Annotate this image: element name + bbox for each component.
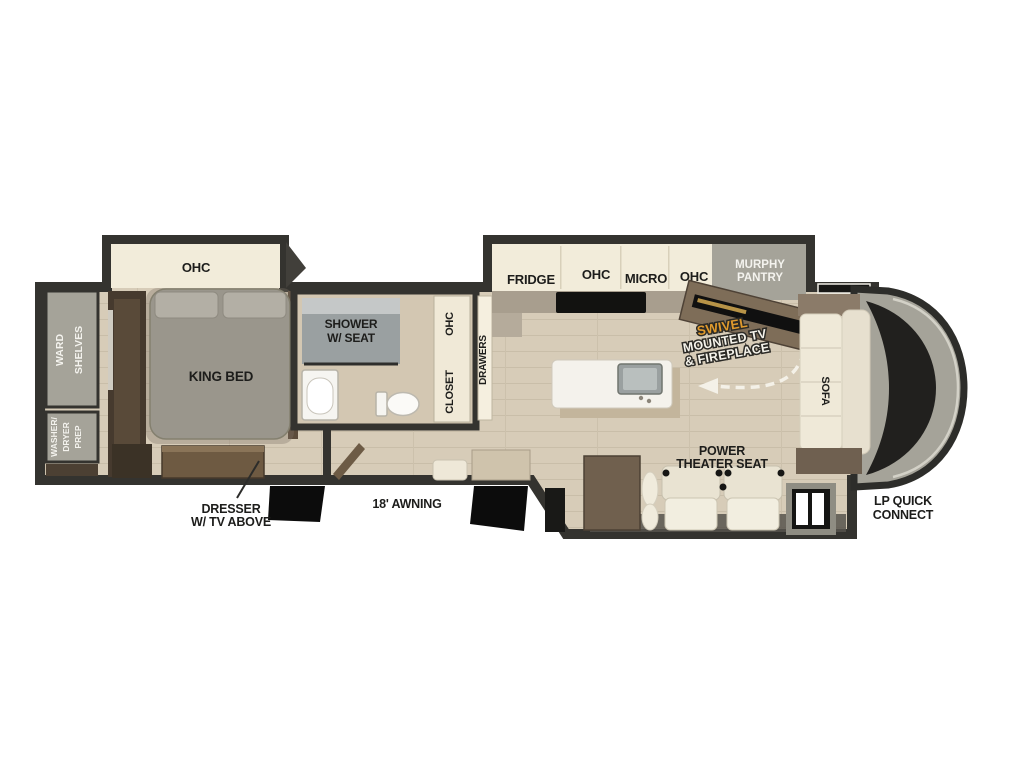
sofa-seat	[842, 310, 870, 454]
toilet-tank	[376, 392, 387, 416]
cabinet-seam	[620, 246, 622, 289]
king-bed-label: KING BED	[189, 369, 254, 384]
awning-label: 18' AWNING	[372, 497, 441, 511]
entry-door	[786, 483, 836, 535]
faucet-dot	[647, 399, 651, 403]
shower-label-line1: SHOWER	[325, 317, 378, 331]
theater-seat-left	[662, 466, 720, 530]
floorplan-canvas: OHC WARD SHELVES WASHER/ DRYER PREP KING…	[0, 0, 1024, 768]
seat-cushion	[665, 498, 717, 530]
closet-ohc-label: OHC	[444, 312, 456, 336]
side-table	[584, 456, 640, 530]
bedroom-ohc-label: OHC	[182, 260, 211, 275]
theater-seat-right	[724, 466, 782, 530]
hall-bench	[433, 460, 467, 480]
hall-counter	[472, 450, 530, 480]
dresser-label-line2: W/ TV ABOVE	[191, 515, 271, 529]
bathroom-sink-bowl	[307, 378, 333, 414]
slide-corner-wedge	[286, 242, 306, 288]
bedroom-bench	[112, 444, 152, 478]
hall-wall	[323, 425, 331, 482]
lp-label-line2: CONNECT	[873, 508, 934, 522]
wardrobe-inner	[114, 299, 140, 467]
seat-cushion	[727, 498, 779, 530]
shelves-label: SHELVES	[73, 326, 85, 374]
closet-label: CLOSET	[444, 370, 456, 414]
seat-button	[778, 470, 785, 477]
pillow-right	[223, 292, 286, 318]
entry-step	[268, 486, 325, 522]
cabinet-seam	[560, 246, 562, 289]
kitchen-counter-corner	[492, 313, 522, 337]
pillow-left	[155, 292, 218, 318]
shower-label-line2: W/ SEAT	[327, 331, 376, 345]
sofa-label: SOFA	[819, 376, 831, 405]
bedroom-ohc-slide: OHC	[111, 242, 306, 288]
fridge-label: FRIDGE	[507, 272, 555, 287]
drawers-label: DRAWERS	[478, 335, 489, 385]
prep-label: PREP	[73, 425, 83, 448]
dresser-label-line1: DRESSER	[201, 502, 260, 516]
sofa-area: SOFA	[796, 294, 870, 474]
corner-cabinet	[46, 464, 98, 476]
lp-label-line1: LP QUICK	[874, 494, 932, 508]
recliner-wing	[642, 504, 658, 530]
washer-label: WASHER/	[49, 417, 59, 457]
dresser-top-edge	[162, 446, 264, 452]
faucet-dot	[639, 396, 643, 400]
entry-step	[470, 486, 528, 531]
recliner-wing	[642, 472, 658, 506]
murphy-label-line2: PANTRY	[737, 272, 783, 284]
bathroom: SHOWER W/ SEAT OHC CLOSET	[294, 291, 476, 427]
entry-door-pane	[796, 493, 808, 525]
kitchen-island	[552, 360, 680, 418]
seat-back	[662, 466, 720, 500]
entry-dark-corner	[545, 488, 565, 532]
bedroom-window	[108, 310, 113, 390]
sofa-console-bottom	[796, 448, 862, 474]
seat-back	[724, 466, 782, 500]
kitchen-ohc-left-label: OHC	[582, 267, 611, 282]
seat-button	[720, 484, 727, 491]
theater-label-line2: THEATER SEAT	[676, 457, 768, 471]
cabinet-seam	[668, 246, 670, 289]
micro-label: MICRO	[625, 271, 667, 286]
cooktop	[556, 292, 646, 313]
seat-button	[663, 470, 670, 477]
front-wardrobe-area: WARD SHELVES WASHER/ DRYER PREP	[46, 291, 98, 476]
toilet-bowl	[387, 393, 419, 416]
island-sink-basin	[623, 368, 657, 390]
entry-door-pane	[812, 493, 824, 525]
dryer-label: DRYER	[61, 422, 71, 451]
ward-label: WARD	[54, 334, 66, 366]
shower-top	[302, 298, 400, 314]
theater-label-line1: POWER	[699, 444, 745, 458]
murphy-label-line1: MURPHY	[735, 259, 785, 271]
